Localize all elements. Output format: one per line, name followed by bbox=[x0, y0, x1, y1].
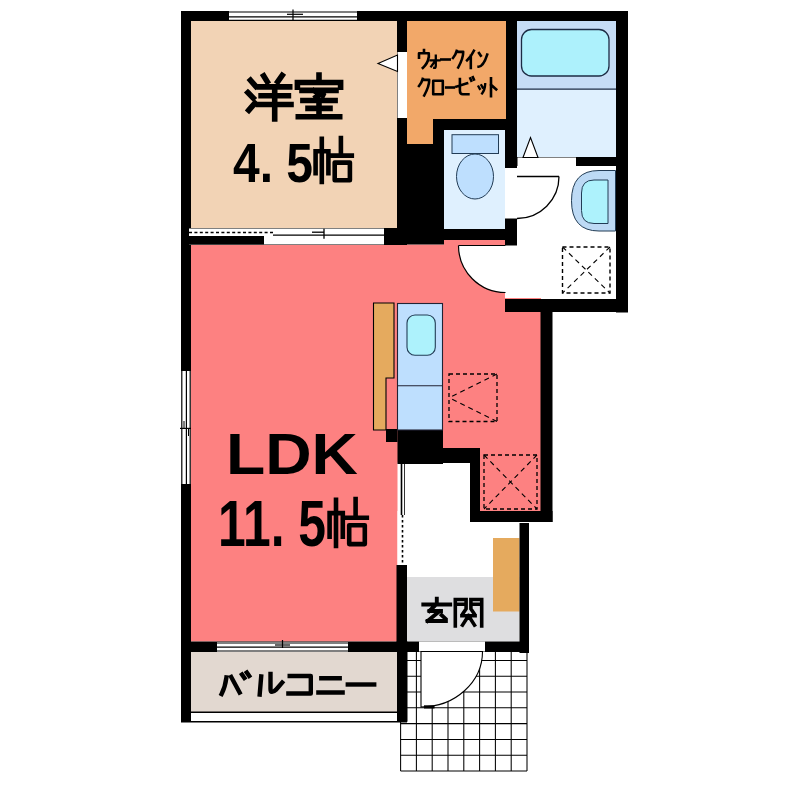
svg-text:4. 5: 4. 5 bbox=[233, 131, 313, 194]
svg-text:LDK: LDK bbox=[226, 421, 358, 486]
svg-text:11. 5: 11. 5 bbox=[218, 488, 326, 560]
